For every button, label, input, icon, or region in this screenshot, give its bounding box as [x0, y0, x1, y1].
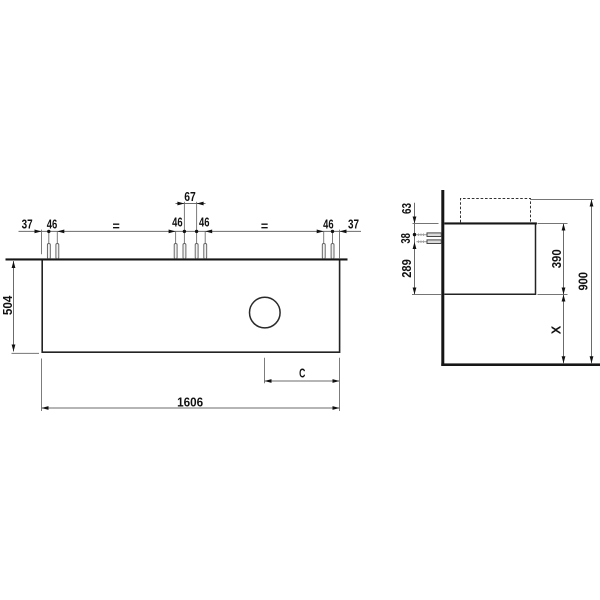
svg-text:X: X — [550, 325, 564, 334]
svg-text:38: 38 — [399, 233, 413, 244]
svg-text:63: 63 — [400, 203, 414, 214]
svg-text:390: 390 — [550, 249, 564, 268]
svg-text:46: 46 — [199, 216, 210, 230]
svg-text:504: 504 — [1, 296, 15, 316]
svg-text:C: C — [299, 367, 305, 381]
svg-text:=: = — [113, 220, 120, 234]
svg-text:46: 46 — [172, 216, 183, 230]
svg-text:46: 46 — [323, 218, 334, 232]
svg-text:=: = — [261, 220, 268, 234]
svg-text:46: 46 — [47, 218, 58, 232]
svg-text:67: 67 — [184, 190, 196, 204]
svg-text:37: 37 — [348, 218, 359, 232]
svg-text:1606: 1606 — [177, 396, 203, 410]
svg-text:289: 289 — [400, 259, 414, 278]
svg-text:900: 900 — [577, 272, 591, 291]
svg-text:37: 37 — [22, 218, 33, 232]
